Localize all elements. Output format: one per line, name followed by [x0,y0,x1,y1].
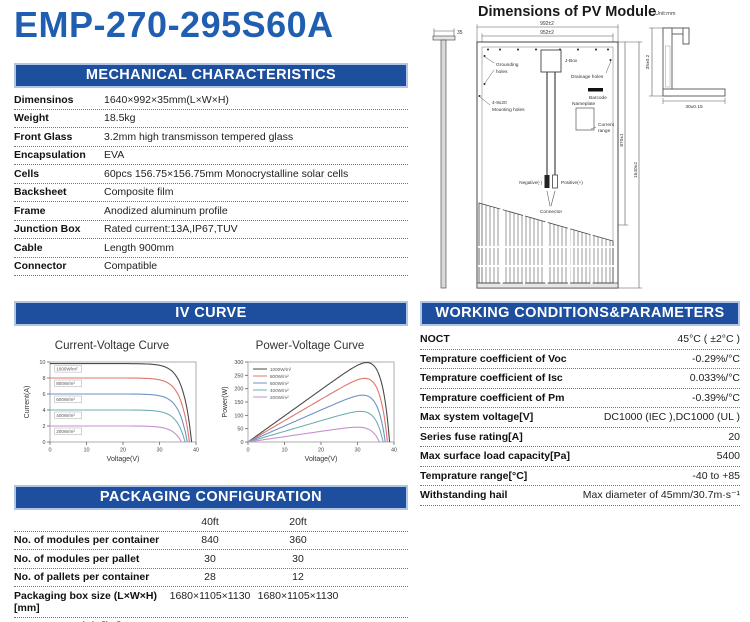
svg-text:0: 0 [240,440,243,446]
pack-value: 30 [166,553,254,565]
pv-module-diagram: Dimensions of PV Module Unit:mm 35 992±2 [420,0,746,298]
spec-label: Weight [14,112,104,124]
svg-text:4: 4 [42,408,45,414]
param-label: Temprature coefficient of Isc [420,372,563,384]
svg-text:Power(W): Power(W) [222,386,229,417]
svg-text:300: 300 [234,360,243,366]
svg-text:Mounting holes: Mounting holes [492,107,525,113]
svg-text:Voltage(V): Voltage(V) [305,456,338,463]
pack-label: No. of modules per pallet [14,553,166,565]
svg-text:0: 0 [42,440,45,446]
power-voltage-chart: 010203040050100150200250300Voltage(V)Pow… [218,354,402,464]
param-value: 20 [728,431,740,443]
table-row: Weight18.5kg [14,110,408,129]
chart-title: Current-Voltage Curve [20,340,204,352]
iv-curve-charts: Current-Voltage Curve 0102030400246810Vo… [14,334,408,469]
pack-value: 840 [166,534,254,546]
table-row: Temprature coefficient of Voc-0.29%/°C [420,350,740,370]
svg-text:40: 40 [193,448,199,454]
nameplate-label: Nameplate [572,101,596,107]
spec-label: Front Glass [14,131,104,143]
drainage-holes-label: Drainage holes [571,74,604,80]
module-height-dimension: 1640±2 [633,162,639,178]
svg-text:400W/m²: 400W/m² [270,388,289,393]
param-value: -40 to +85 [692,470,740,482]
svg-text:40: 40 [391,448,397,454]
pack-label: No. of modules per container [14,534,166,546]
spec-value: Rated current:13A,IP67,TUV [104,223,408,235]
param-label: Temprature coefficient of Pm [420,392,565,404]
positive-terminal-label: Positive(+) [561,180,583,185]
pack-label: No. of pallets per container [14,571,166,583]
table-row: CableLength 900mm [14,239,408,258]
chart-title: Power-Voltage Curve [218,340,402,352]
spec-label: Cells [14,168,104,180]
iv-curve-section-header: IV CURVE [14,301,408,326]
param-label: Max system voltage[V] [420,411,533,423]
table-row: Junction BoxRated current:13A,IP67,TUV [14,221,408,240]
spec-value: EVA [104,149,408,161]
svg-text:600W/m²: 600W/m² [270,381,289,386]
param-label: Temprature coefficient of Voc [420,353,567,365]
svg-text:10: 10 [39,360,45,366]
chart-figure: Current-Voltage Curve 0102030400246810Vo… [20,334,204,469]
spec-value: Compatible [104,260,408,272]
diagram-title: Dimensions of PV Module [478,4,656,20]
spec-value: 60pcs 156.75×156.75mm Monocrystalline so… [104,168,408,180]
svg-text:Current(A): Current(A) [24,386,31,419]
thickness-dimension: 35 [457,30,463,36]
spec-label: Cable [14,242,104,254]
module-side-view: 35 [433,29,463,289]
svg-text:400W/m²: 400W/m² [56,413,75,418]
param-label: NOCT [420,333,450,345]
param-value: 5400 [717,450,740,462]
table-row: Series fuse rating[A]20 [420,428,740,448]
svg-text:2: 2 [42,424,45,430]
svg-text:150: 150 [234,400,243,406]
current-voltage-chart: 0102030400246810Voltage(V)Current(A)1000… [20,354,204,464]
spec-label: Junction Box [14,223,104,235]
pack-value: 30 [254,553,342,565]
table-row: ConnectorCompatible [14,258,408,277]
table-row: FrameAnodized aluminum profile [14,202,408,221]
page-title: EMP-270-295S60A [14,4,334,46]
spec-value: Length 900mm [104,242,408,254]
unit-label: Unit:mm [655,11,676,17]
svg-text:0: 0 [48,448,51,454]
table-row: Temprature coefficient of Isc0.033%/°C [420,369,740,389]
barcode-mark [588,88,603,92]
svg-text:30: 30 [354,448,360,454]
svg-text:0: 0 [246,448,249,454]
table-row: Temprature range[°C]-40 to +85 [420,467,740,487]
table-row: Cells60pcs 156.75×156.75mm Monocrystalli… [14,165,408,184]
spec-label: Frame [14,205,104,217]
param-value: 45°C ( ±2°C ) [677,333,740,345]
svg-text:20: 20 [120,448,126,454]
mechanical-table: Dimensinos1640×992×35mm(L×W×H) Weight18.… [14,91,408,276]
pack-value: 28 [166,571,254,583]
table-row: Withstanding hailMax diameter of 45mm/30… [420,486,740,506]
table-row: Max system voltage[V]DC1000 (IEC ),DC100… [420,408,740,428]
frame-cross-section: 35±0.2 30±0.15 [645,28,725,110]
table-row: Front Glass3.2mm high transmisson temper… [14,128,408,147]
pack-value: 1680×1105×1130 [166,590,254,614]
mechanical-section-header: MECHANICAL CHARACTERISTICS [14,63,408,88]
table-row: No. of modules per pallet3030 [14,550,408,569]
param-label: Max surface load capacity[Pa] [420,450,570,462]
svg-text:10: 10 [281,448,287,454]
svg-text:30: 30 [156,448,162,454]
grounding-holes-label: Grounding [496,62,519,68]
packaging-section-header: PACKAGING CONFIGURATION [14,485,408,510]
spec-value: 18.5kg [104,112,408,124]
table-row: Max surface load capacity[Pa]5400 [420,447,740,467]
hole-height-dimension: 870±1 [619,133,625,147]
connector-label: Connector [540,209,563,215]
spec-value: Anodized aluminum profile [104,205,408,217]
svg-text:600W/m²: 600W/m² [56,397,75,402]
table-row: Box gross weight[kg]590590 [14,618,408,622]
working-conditions-table: NOCT45°C ( ±2°C ) Temprature coefficient… [420,330,740,506]
param-value: DC1000 (IEC ),DC1000 (UL ) [604,411,740,423]
svg-text:800W/m²: 800W/m² [270,374,289,379]
spec-sheet: EMP-270-295S60A MECHANICAL CHARACTERISTI… [0,0,750,622]
table-row: Temprature coefficient of Pm-0.39%/°C [420,389,740,409]
table-row: Packaging box size (L×W×H)[mm]1680×1105×… [14,587,408,618]
svg-text:20: 20 [318,448,324,454]
svg-text:100: 100 [234,413,243,419]
frame-height-dimension: 35±0.2 [645,54,651,69]
spec-label: Backsheet [14,186,104,198]
frame-width-dimension: 30±0.15 [685,104,703,110]
table-row: No. of modules per container840360 [14,532,408,551]
pack-value: 360 [254,534,342,546]
spec-label: Encapsulation [14,149,104,161]
svg-text:range: range [598,128,611,134]
current-range-label: Current [598,122,615,128]
table-row: EncapsulationEVA [14,147,408,166]
spec-value: Composite film [104,186,408,198]
table-row: No. of pallets per container2812 [14,569,408,588]
param-value: 0.033%/°C [690,372,740,384]
negative-terminal-label: Negative(-) [519,180,542,185]
table-row: NOCT45°C ( ±2°C ) [420,330,740,350]
svg-text:800W/m²: 800W/m² [56,381,75,386]
param-label: Series fuse rating[A] [420,431,523,443]
spec-value: 1640×992×35mm(L×W×H) [104,94,408,106]
param-value: -0.29%/°C [692,353,740,365]
chart-figure: Power-Voltage Curve 01020304005010015020… [218,334,402,469]
packaging-column-header-row: 40ft 20ft [14,513,408,532]
mounting-holes-label: 4-9x20 [492,100,507,106]
module-back-view: 992±2 952±2 J-Box [477,21,642,288]
pv-module-diagram-svg: Dimensions of PV Module Unit:mm 35 992±2 [420,0,746,298]
column-header-20ft: 20ft [254,516,342,528]
svg-text:200W/m²: 200W/m² [56,429,75,434]
param-label: Withstanding hail [420,489,507,501]
spec-value: 3.2mm high transmisson tempered glass [104,131,408,143]
svg-text:200: 200 [234,387,243,393]
spec-label: Connector [14,260,104,272]
svg-text:1000W/m²: 1000W/m² [56,367,78,372]
width-outer-dimension: 992±2 [540,21,554,27]
table-row: Dimensinos1640×992×35mm(L×W×H) [14,91,408,110]
pack-label: Packaging box size (L×W×H)[mm] [14,590,166,614]
param-value: Max diameter of 45mm/30.7m·s⁻¹ [583,489,740,501]
pack-value: 1680×1105×1130 [254,590,342,614]
barcode-label: Barcode [589,95,607,101]
svg-text:10: 10 [83,448,89,454]
svg-text:holes: holes [496,69,508,75]
width-inner-dimension: 952±2 [540,30,554,36]
jbox-label: J-Box [565,58,578,64]
column-header-40ft: 40ft [166,516,254,528]
spec-label: Dimensinos [14,94,104,106]
svg-text:Voltage(V): Voltage(V) [107,456,140,463]
svg-text:8: 8 [42,376,45,382]
packaging-table: 40ft 20ft No. of modules per container84… [14,513,408,622]
param-value: -0.39%/°C [692,392,740,404]
svg-text:6: 6 [42,392,45,398]
working-conditions-section-header: WORKING CONDITIONS&PARAMETERS [420,301,740,326]
pack-value: 12 [254,571,342,583]
svg-text:200W/m²: 200W/m² [270,395,289,400]
table-row: BacksheetComposite film [14,184,408,203]
svg-text:1000W/m²: 1000W/m² [270,367,292,372]
param-label: Temprature range[°C] [420,470,527,482]
svg-text:250: 250 [234,373,243,379]
svg-text:50: 50 [237,427,243,433]
